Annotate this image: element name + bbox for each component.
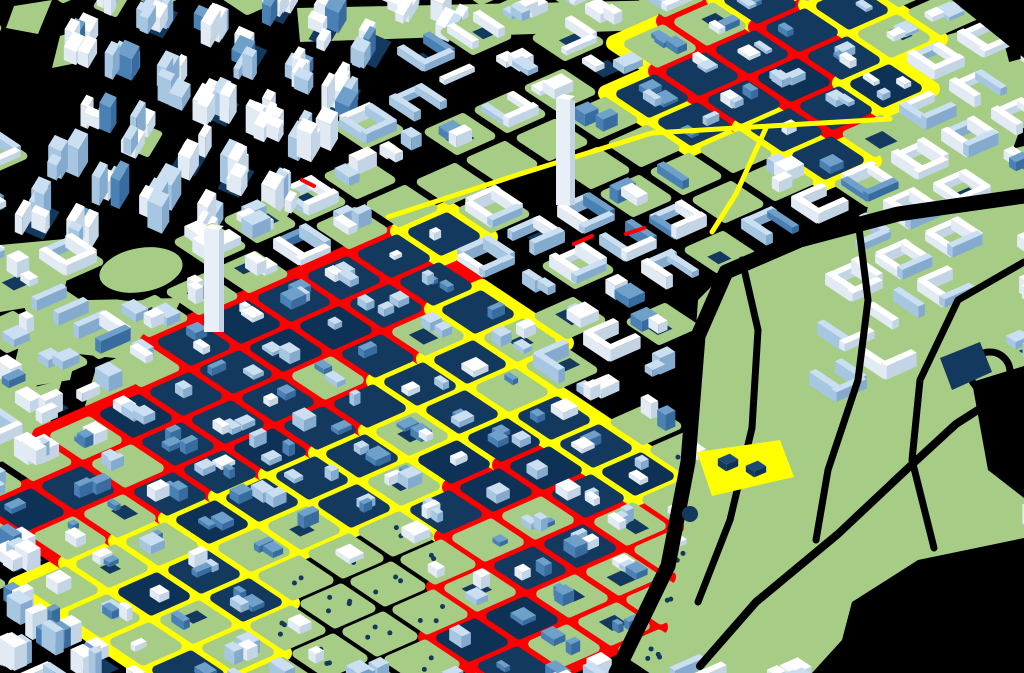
city-3d-scene [0,0,1024,673]
map-viewport[interactable] [0,0,1024,673]
